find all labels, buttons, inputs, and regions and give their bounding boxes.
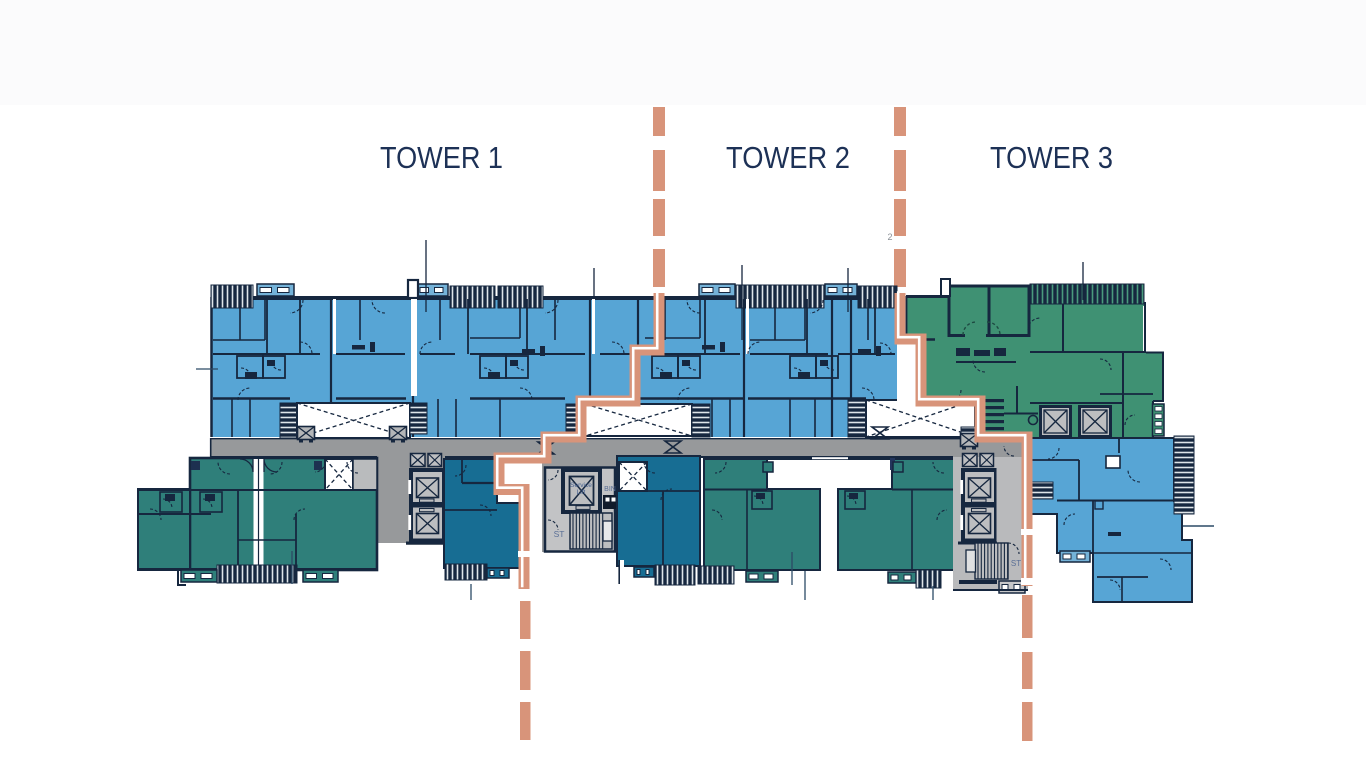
svg-text:Lift: Lift — [577, 489, 586, 496]
svg-text:Service: Service — [570, 482, 592, 489]
svg-text:TOWER 3: TOWER 3 — [990, 140, 1113, 175]
svg-text:ST: ST — [554, 529, 565, 539]
svg-text:TOWER 1: TOWER 1 — [380, 140, 503, 175]
svg-text:2: 2 — [887, 232, 892, 242]
svg-text:BIN: BIN — [604, 486, 616, 493]
svg-text:TOWER 2: TOWER 2 — [726, 140, 850, 175]
svg-text:ST: ST — [1011, 559, 1021, 568]
